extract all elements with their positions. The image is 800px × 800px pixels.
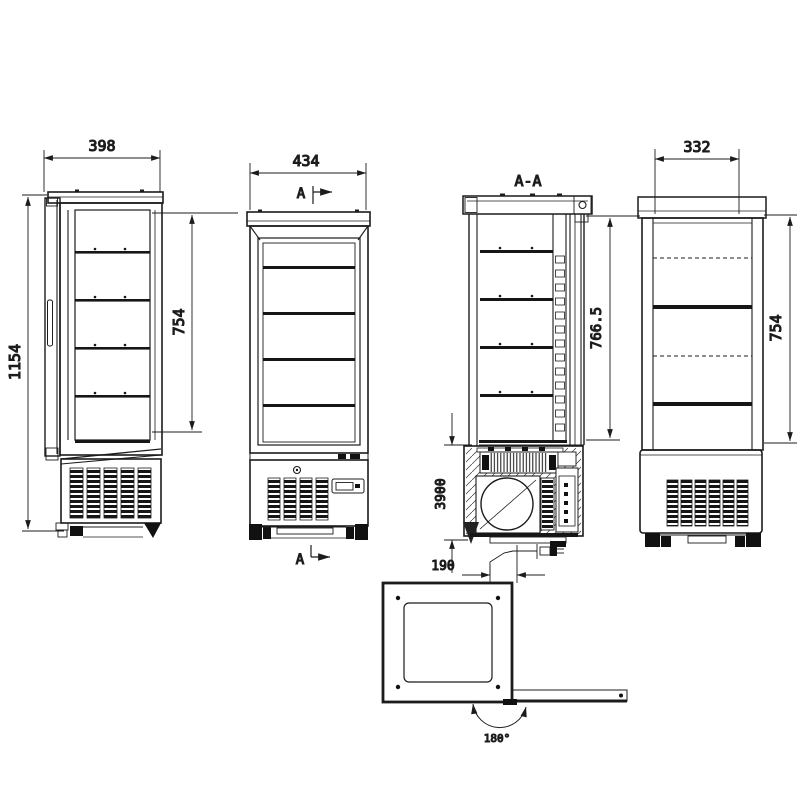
- front-glass-door: [250, 226, 368, 453]
- plan-view: 180°: [383, 583, 627, 745]
- rear-width-dim-label: 332: [683, 138, 710, 156]
- refrigerated-display-cabinet-drawing: 398: [0, 0, 800, 800]
- leveling-foot: [746, 533, 761, 547]
- section-canopy: [463, 194, 592, 215]
- side-width-dim-label: 398: [88, 137, 115, 155]
- plan-inner-frame: [404, 603, 492, 682]
- drain-fitting: [490, 544, 564, 575]
- compressor: [476, 476, 540, 533]
- section-machine-compartment: [463, 446, 583, 547]
- shelves: [263, 266, 355, 407]
- caster: [144, 523, 161, 538]
- door-swing-arc: [473, 704, 526, 728]
- section-title: A-A: [514, 172, 541, 190]
- drain-offset-label: 190: [431, 559, 454, 574]
- terminal-box: [556, 452, 578, 532]
- shelf-line: [653, 305, 752, 309]
- side-cabinet-body: [60, 203, 162, 455]
- condenser-fins: [477, 447, 563, 473]
- glass-door-section: [570, 214, 588, 445]
- rear-cabinet-body: [642, 218, 763, 450]
- shelf-line: [75, 251, 150, 254]
- compressor-circle: [481, 478, 533, 530]
- side-feet: [56, 523, 161, 538]
- door-hinge: [503, 699, 517, 705]
- shelf-line: [480, 346, 553, 349]
- shelves: [480, 247, 553, 397]
- leveling-foot: [70, 526, 83, 536]
- shelf-line: [75, 299, 150, 302]
- side-height-dim-label: 1154: [6, 344, 24, 380]
- front-width-dimension: [250, 163, 366, 210]
- control-panel: [332, 479, 364, 493]
- plan-cabinet-outline: [383, 583, 512, 702]
- section-interior: [469, 214, 588, 446]
- vent-grille: [268, 478, 328, 520]
- shelf-line: [263, 358, 355, 361]
- section-interior-height-label: 766.5: [589, 307, 605, 349]
- shelf-line: [75, 395, 150, 398]
- technical-drawing-page: 398: [0, 0, 800, 800]
- side-glass-height-dim-label: 754: [170, 308, 188, 335]
- section-marker-bottom-label: A: [296, 552, 305, 568]
- section-marker-top-label: A: [297, 186, 306, 202]
- front-width-dim-label: 434: [292, 152, 319, 170]
- leveling-foot: [645, 533, 660, 547]
- rear-view: 332: [638, 138, 797, 547]
- shelf-line: [653, 402, 752, 406]
- open-door-plan: [503, 690, 627, 705]
- shelf-line: [480, 394, 553, 397]
- leveling-foot: [355, 524, 368, 540]
- shelf-line: [263, 312, 355, 315]
- side-canopy: [48, 190, 163, 204]
- shelf-line: [263, 404, 355, 407]
- shelf-line: [480, 250, 553, 253]
- door-swing-angle-label: 180°: [484, 732, 511, 745]
- plan-corner-screws: [396, 596, 500, 689]
- shelf-line: [75, 347, 150, 350]
- shelf-line: [480, 298, 553, 301]
- section-view: A-A: [431, 172, 640, 583]
- door-handle: [48, 300, 53, 346]
- rear-canopy: [638, 197, 766, 218]
- section-cut-marker-bottom: [311, 545, 330, 557]
- rear-feet: [645, 533, 761, 547]
- vent-grille: [70, 468, 151, 518]
- rear-glass-height-dim-label: 754: [767, 314, 785, 341]
- lamp-circle: [579, 202, 586, 209]
- shelves: [75, 248, 150, 398]
- side-glass-height-dimension: [152, 213, 238, 432]
- side-width-dimension: [44, 150, 160, 192]
- side-height-dimension: [22, 195, 64, 531]
- leveling-foot: [249, 524, 262, 540]
- section-cut-marker-top: [313, 186, 332, 204]
- rear-machine-compartment: [640, 450, 762, 533]
- side-machine-compartment: [61, 449, 161, 523]
- front-view: 434 A: [247, 152, 370, 568]
- glass-door-side-profile: [45, 198, 60, 460]
- machine-compartment-height-label: 3900: [434, 478, 449, 509]
- front-machine-compartment: [250, 453, 368, 526]
- vent-grille: [667, 480, 748, 526]
- shelf-line: [263, 266, 355, 269]
- shelf-support-rack: [556, 256, 565, 431]
- front-canopy: [247, 210, 370, 227]
- rear-width-dimension: [655, 149, 739, 214]
- side-view: 398: [6, 137, 238, 538]
